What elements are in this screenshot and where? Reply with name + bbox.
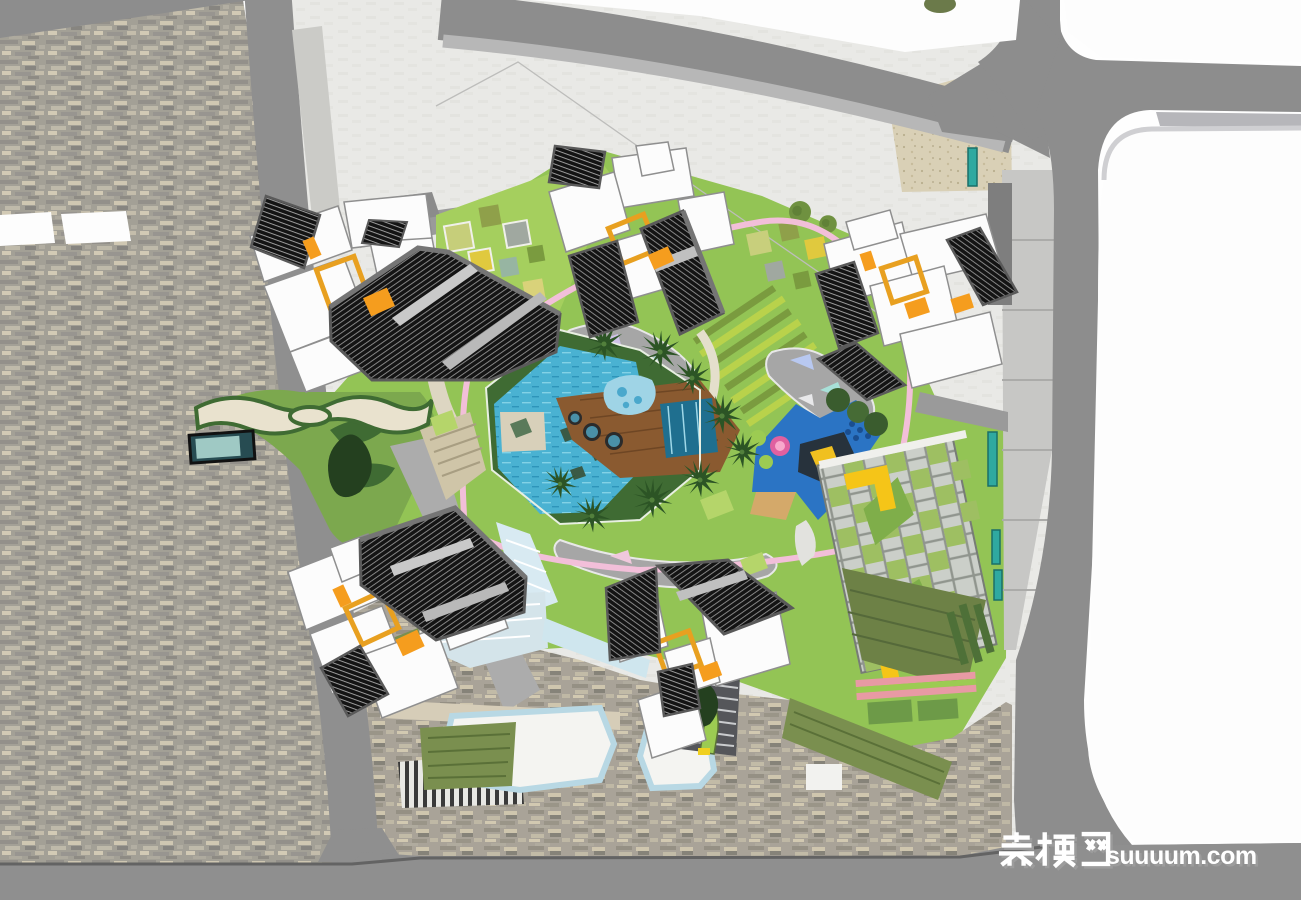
svg-text:suuuum.com: suuuum.com — [1106, 842, 1257, 870]
